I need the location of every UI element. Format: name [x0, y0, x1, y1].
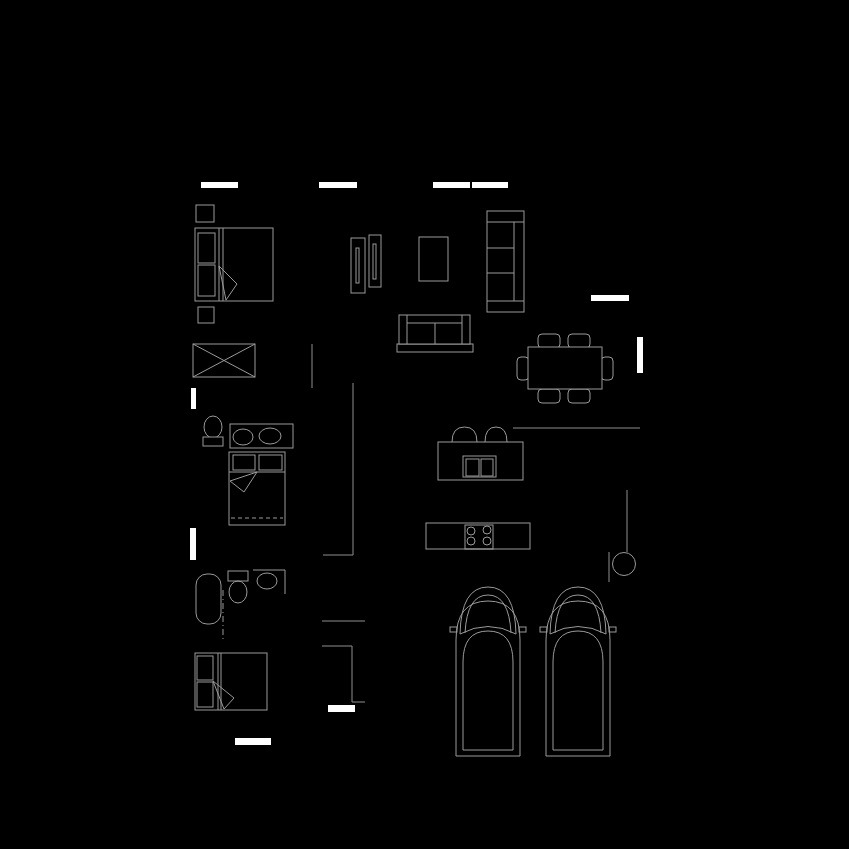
media-panel-1 — [351, 238, 365, 293]
window-top-2 — [319, 182, 357, 188]
dining-chair-bottom-2 — [568, 389, 590, 403]
toilet-2-tank — [203, 437, 223, 446]
media-panel-1-slit — [356, 248, 359, 283]
sofa-vertical-body — [487, 211, 524, 312]
window-left-1 — [191, 388, 196, 409]
toilet-3-tank — [228, 571, 248, 581]
nightstand-1 — [196, 205, 214, 222]
toilet-2-bowl — [204, 416, 222, 438]
toilet-3-bowl — [229, 581, 247, 603]
car-1-hood-line — [460, 627, 516, 635]
water-heater — [613, 553, 636, 576]
dining-chair-top-2 — [568, 334, 590, 348]
door-bottom-1 — [328, 705, 355, 712]
floor-plan-canvas — [0, 0, 849, 849]
vanity-sink-2 — [259, 428, 281, 444]
window-top-4 — [472, 182, 508, 188]
dining-chair-bottom-1 — [538, 389, 560, 403]
burner-1 — [467, 527, 475, 535]
nightstand-2 — [198, 307, 214, 323]
burner-3 — [467, 537, 475, 545]
window-right-vertical — [637, 337, 643, 373]
corner-sink-basin — [257, 573, 277, 589]
window-top-1 — [201, 182, 238, 188]
bar-stool-1 — [452, 427, 477, 442]
window-top-3 — [433, 182, 470, 188]
burner-2 — [483, 526, 491, 534]
bed2-frame — [229, 452, 285, 525]
kitchen-counter — [426, 523, 530, 549]
bar-stool-2 — [485, 427, 507, 442]
car-1-cabin — [463, 631, 513, 750]
vanity-sink-1 — [233, 429, 253, 445]
dining-chair-right — [601, 357, 613, 380]
dining-chair-top-1 — [538, 334, 560, 348]
dining-table — [528, 347, 602, 389]
dining-chair-left — [517, 357, 529, 380]
layer-furniture — [193, 205, 636, 756]
media-panel-2-slit — [373, 244, 376, 279]
car-2-hood-line — [550, 627, 606, 635]
door-bottom-2 — [235, 738, 271, 745]
window-left-2 — [190, 528, 196, 560]
floor-plan-svg — [0, 0, 849, 849]
window-right-horizontal — [591, 295, 629, 301]
burner-4 — [483, 537, 491, 545]
sofa-horizontal-base — [397, 344, 473, 352]
car-2-cabin — [553, 631, 603, 750]
bathtub — [196, 574, 221, 624]
armchair-table — [419, 237, 448, 281]
